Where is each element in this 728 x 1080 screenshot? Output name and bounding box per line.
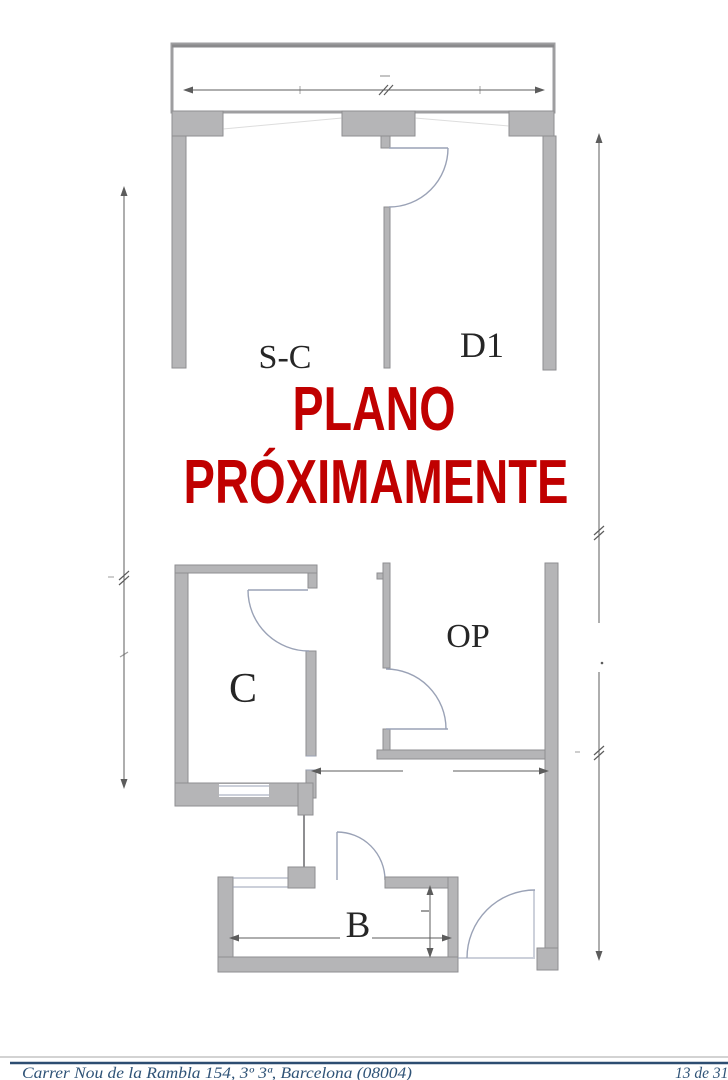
wall-right-lower (545, 563, 558, 948)
room-label-c: C (229, 666, 257, 712)
wall-tab (377, 573, 383, 579)
room-c-walls (175, 565, 317, 880)
room-label-d1: D1 (460, 325, 504, 365)
room-label-sc: S-C (259, 339, 312, 376)
watermark-line2: PRÓXIMAMENTE (184, 448, 569, 517)
wall-right-upper (543, 136, 556, 370)
room-b-walls (218, 867, 458, 972)
wall-right-foot (537, 948, 558, 970)
wall-bottom-op (377, 750, 546, 759)
wall-top-b (385, 877, 453, 888)
wall-divider-sc-d1 (384, 207, 390, 368)
wall-right-b (448, 877, 458, 957)
door-hall (337, 832, 385, 880)
wall-left-op (383, 563, 390, 668)
wall-top-c (175, 565, 317, 573)
wall-pillar-b (288, 867, 315, 888)
door-arc (248, 590, 309, 651)
room-label-op: OP (446, 618, 489, 655)
door-c (248, 590, 309, 651)
wall-jamb (308, 573, 317, 588)
door-arc (467, 890, 535, 958)
wall-tab (381, 136, 390, 148)
wall-stub-left (172, 111, 223, 136)
wall-left-op-lower (383, 729, 390, 750)
wall-bottom-b (218, 957, 458, 972)
leader-line (223, 118, 342, 129)
leader-line (415, 118, 509, 126)
wall-tab-hall (298, 783, 313, 815)
wall-left-c (175, 565, 188, 806)
wall-left-upper (172, 136, 186, 368)
door-arc (386, 669, 446, 729)
balcony (172, 44, 554, 112)
wall-stub-right (509, 111, 554, 136)
door-arc (389, 148, 448, 207)
footer: Carrer Nou de la Rambla 154, 3º 3ª, Barc… (0, 1057, 728, 1080)
door-entrance (458, 890, 535, 958)
balcony-outline (172, 44, 554, 112)
watermark-line1: PLANO (293, 375, 456, 444)
room-label-b: B (346, 905, 371, 946)
door-arc (337, 832, 385, 880)
door-d1 (389, 148, 448, 207)
wall-right-c (306, 651, 316, 756)
dimension-line-right (575, 133, 604, 961)
dimension-lines-b (229, 885, 452, 958)
dimension-line-horizontal (311, 768, 549, 775)
dimension-line-left (108, 186, 129, 789)
footer-address: Carrer Nou de la Rambla 154, 3º 3ª, Barc… (22, 1065, 412, 1080)
wall-stub-middle (342, 111, 415, 136)
footer-page-indicator: 13 de 31 (675, 1065, 728, 1080)
door-op (386, 669, 448, 729)
floor-plan-drawing: S-C D1 PLANO PRÓXIMAMENTE (0, 0, 728, 1080)
floor-plan-page: { "document": { "watermark": { "line1": … (0, 0, 728, 1080)
